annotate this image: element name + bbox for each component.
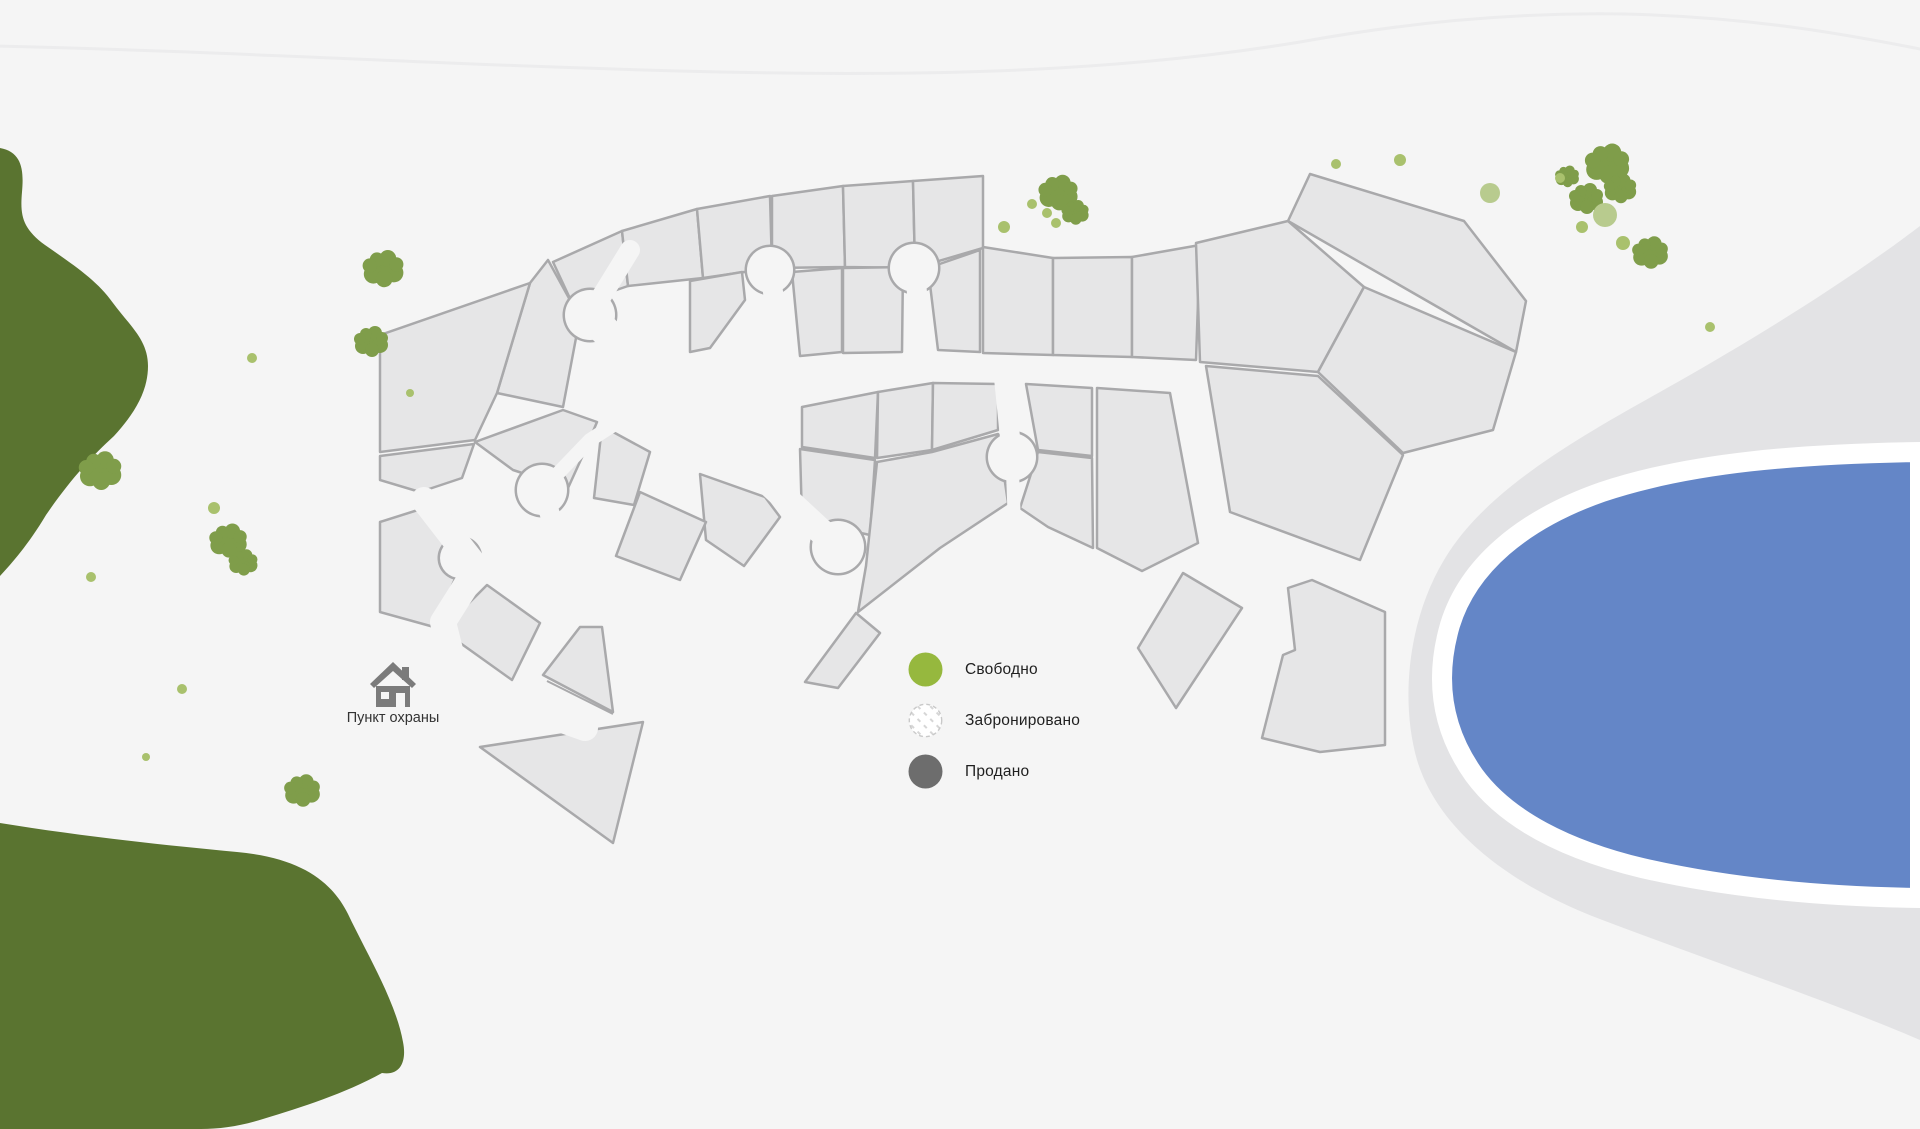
- legend-label-sold: Продано: [965, 763, 1029, 781]
- tree-puff: [238, 564, 250, 576]
- tree-puff: [1655, 243, 1668, 256]
- shrub-dot-icon: [142, 753, 150, 761]
- tree-puff: [296, 792, 311, 807]
- tree-puff: [1604, 180, 1615, 191]
- shrub-dot-icon: [1593, 203, 1617, 227]
- road: [1004, 378, 1012, 457]
- tree-puff: [229, 555, 239, 565]
- forest-area: [0, 823, 404, 1129]
- shrub-dot-icon: [1576, 221, 1588, 233]
- plot-polygon[interactable]: [805, 613, 880, 688]
- tree-puff: [209, 531, 222, 544]
- shrub-dot-icon: [1616, 236, 1630, 250]
- shrub-dot-icon: [1705, 322, 1715, 332]
- tree-icon: [284, 774, 320, 807]
- tree-puff: [284, 782, 297, 795]
- tree-puff: [247, 554, 257, 564]
- legend-item-free: Свободно: [908, 652, 1080, 687]
- plot-polygon[interactable]: [543, 627, 613, 712]
- status-reserved-swatch: [908, 703, 943, 738]
- plot-polygon[interactable]: [792, 268, 842, 356]
- status-sold-swatch: [908, 754, 943, 789]
- plot-polygon[interactable]: [858, 434, 1008, 612]
- tree-puff: [1644, 254, 1659, 269]
- legend-item-reserved: Забронировано: [908, 703, 1080, 738]
- road: [770, 270, 782, 358]
- shrub-dot-icon: [1051, 218, 1061, 228]
- tree-icon: [1632, 236, 1668, 269]
- tree-puff: [1061, 206, 1071, 216]
- tree-puff: [79, 460, 94, 475]
- masterplan-map: [0, 0, 1920, 1129]
- road: [590, 315, 690, 420]
- shrub-dot-icon: [1042, 208, 1052, 218]
- tree-puff: [1632, 244, 1645, 257]
- status-free-swatch: [908, 652, 943, 687]
- plot-polygon[interactable]: [983, 247, 1053, 355]
- shrub-dot-icon: [406, 389, 414, 397]
- tree-icon: [354, 326, 388, 357]
- plot-polygon[interactable]: [1053, 257, 1132, 357]
- tree-puff: [376, 270, 393, 287]
- plot-polygon[interactable]: [877, 383, 933, 458]
- tree-puff: [1079, 205, 1089, 215]
- tree-puff: [1591, 189, 1603, 201]
- tree-puff: [1625, 179, 1636, 190]
- shrub-dot-icon: [998, 221, 1010, 233]
- masterplan-page: Пункт охраны Свободно Забронировано: [0, 0, 1920, 1129]
- road: [1012, 457, 1014, 512]
- plot-polygon[interactable]: [1138, 573, 1242, 708]
- plot-polygon[interactable]: [1097, 388, 1198, 571]
- tree-puff: [354, 333, 366, 345]
- shrub-dot-icon: [1394, 154, 1406, 166]
- tree-puff: [1614, 190, 1627, 203]
- map-legend: Свободно Забронировано Продано: [908, 652, 1080, 789]
- shrub-dot-icon: [247, 353, 257, 363]
- tree-puff: [365, 343, 379, 357]
- security-point: Пункт охраны: [310, 660, 476, 726]
- tree-icon: [363, 250, 404, 287]
- tree-puff: [1580, 200, 1594, 214]
- road: [914, 268, 925, 358]
- tree-puff: [1614, 151, 1630, 167]
- plot-polygon[interactable]: [690, 272, 745, 352]
- tree-puff: [376, 332, 388, 344]
- tree-puff: [363, 258, 377, 272]
- legend-label-free: Свободно: [965, 661, 1038, 679]
- plot-polygon[interactable]: [1026, 384, 1092, 456]
- tree-puff: [93, 473, 111, 491]
- security-point-label: Пункт охраны: [310, 710, 476, 726]
- house-icon: [369, 660, 417, 707]
- tree-puff: [1064, 182, 1078, 196]
- tree-puff: [234, 530, 247, 543]
- tree-puff: [106, 459, 121, 474]
- forest-area: [0, 148, 148, 576]
- plot-polygon[interactable]: [1262, 580, 1385, 752]
- tree-puff: [1038, 183, 1052, 197]
- tree-puff: [1070, 214, 1081, 225]
- tree-puff: [307, 781, 320, 794]
- shrub-dot-icon: [86, 572, 96, 582]
- shrub-dot-icon: [1555, 173, 1565, 183]
- tree-puff: [1571, 170, 1579, 178]
- plot-polygon[interactable]: [802, 392, 878, 458]
- shrub-dot-icon: [1480, 183, 1500, 203]
- shrub-dot-icon: [1027, 199, 1037, 209]
- legend-label-reserved: Забронировано: [965, 712, 1080, 730]
- plot-polygon[interactable]: [480, 722, 643, 843]
- tree-puff: [1585, 153, 1601, 169]
- shrub-dot-icon: [177, 684, 187, 694]
- shrub-dot-icon: [1331, 159, 1341, 169]
- shrub-dot-icon: [208, 502, 220, 514]
- legend-item-sold: Продано: [908, 754, 1080, 789]
- plot-polygon[interactable]: [1132, 245, 1200, 360]
- tree-puff: [1569, 190, 1581, 202]
- terrain-contour-line: [0, 14, 1920, 74]
- tree-puff: [389, 257, 403, 271]
